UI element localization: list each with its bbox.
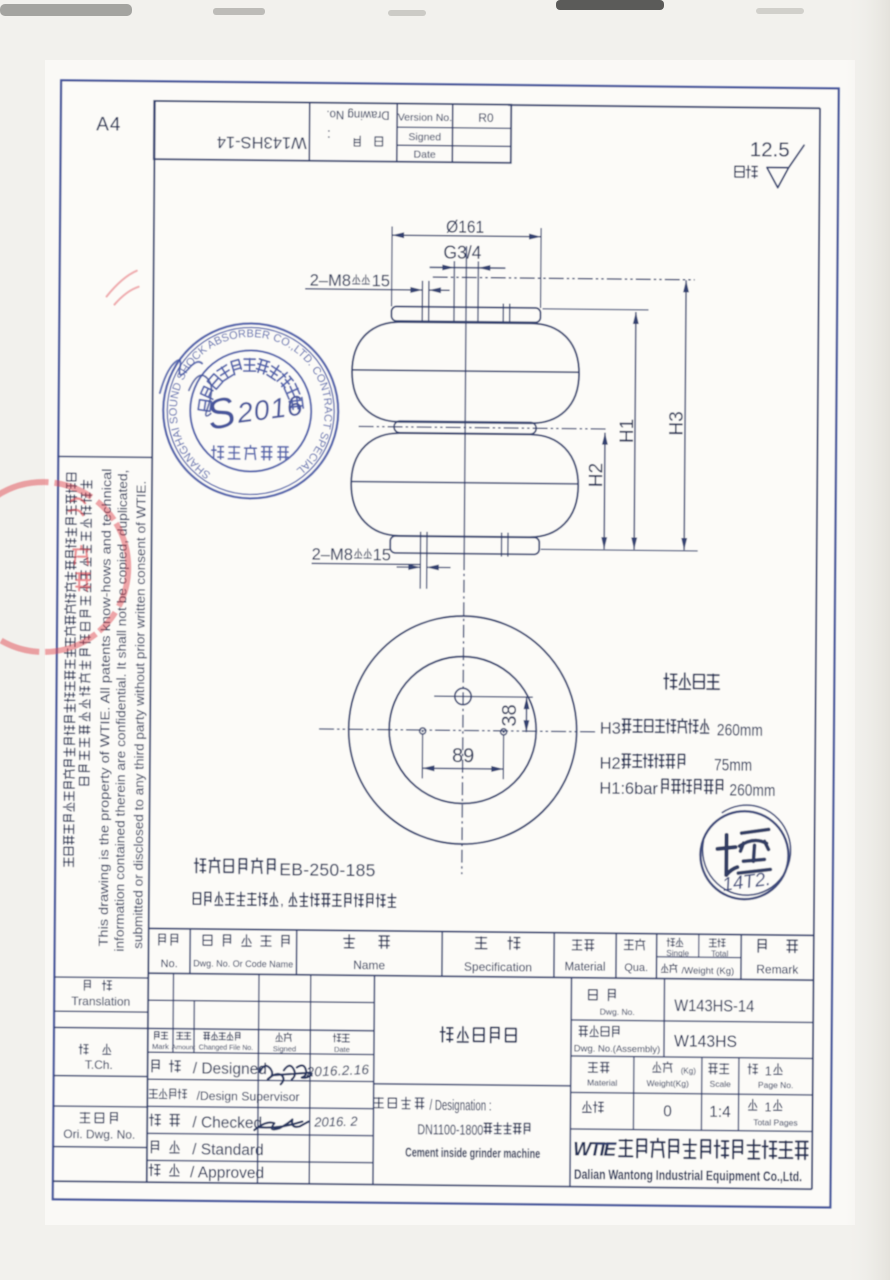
svg-text:/ Approved: / Approved	[190, 1164, 264, 1182]
svg-text:Amount: Amount	[172, 1044, 196, 1051]
svg-text:DN1100-1800: DN1100-1800	[417, 1121, 483, 1139]
svg-text:Specification: Specification	[464, 960, 532, 975]
svg-text:Signed: Signed	[273, 1044, 296, 1053]
svg-text:Page No.: Page No.	[758, 1080, 794, 1090]
svg-text:2016. 2: 2016. 2	[313, 1114, 359, 1130]
svg-text:Signed: Signed	[408, 131, 441, 143]
svg-text:89: 89	[452, 745, 474, 767]
svg-text:Total: Total	[711, 949, 729, 958]
svg-text:2–M8: 2–M8	[310, 272, 351, 290]
svg-text:1: 1	[764, 1100, 771, 1114]
svg-text:Date: Date	[413, 149, 435, 161]
svg-text:H1:: H1:	[599, 780, 625, 798]
svg-text:Dwg. No. Or Code Name: Dwg. No. Or Code Name	[193, 958, 293, 969]
svg-text:Cement inside grinder machine: Cement inside grinder machine	[405, 1145, 540, 1161]
svg-text:/ Designed: / Designed	[193, 1060, 267, 1078]
svg-text:260mm: 260mm	[729, 781, 775, 800]
svg-text:Translation: Translation	[71, 994, 130, 1009]
svg-text:,: ,	[280, 892, 284, 908]
svg-text:2–M8: 2–M8	[312, 546, 353, 564]
svg-text:0: 0	[663, 1103, 672, 1120]
svg-text:15: 15	[373, 546, 391, 564]
svg-text:W143HS-14: W143HS-14	[217, 133, 307, 152]
svg-text:Version No.: Version No.	[398, 111, 452, 124]
svg-text:Changed File No.: Changed File No.	[199, 1044, 254, 1052]
svg-text:/ Checked: / Checked	[192, 1114, 262, 1132]
svg-text:(Kg): (Kg)	[681, 1067, 697, 1076]
svg-text:Scale: Scale	[710, 1079, 732, 1089]
svg-text:A4: A4	[96, 114, 121, 135]
svg-text:38: 38	[499, 704, 521, 726]
svg-text:W143HS-14: W143HS-14	[674, 996, 754, 1016]
svg-text:260mm: 260mm	[717, 720, 763, 739]
svg-text:2016.2.16: 2016.2.16	[305, 1062, 370, 1080]
svg-text:H1: H1	[617, 419, 638, 444]
svg-text:Drawing No.: Drawing No.	[326, 108, 389, 121]
svg-text:Remark: Remark	[756, 962, 799, 976]
svg-text:/ Designation :: / Designation :	[429, 1098, 491, 1115]
svg-text:T.Ch.: T.Ch.	[85, 1058, 113, 1072]
svg-text:1: 1	[765, 1064, 772, 1078]
svg-text:R0: R0	[478, 111, 494, 125]
svg-text:12.5: 12.5	[750, 138, 790, 161]
svg-text:EB-250-185: EB-250-185	[279, 859, 376, 880]
svg-text:Total Pages: Total Pages	[753, 1117, 797, 1127]
svg-text:H2: H2	[586, 463, 607, 488]
svg-text:Ø161: Ø161	[446, 216, 484, 236]
svg-text:H3:: H3:	[600, 720, 626, 738]
svg-text:/Weight (Kg): /Weight (Kg)	[681, 966, 734, 978]
svg-text:/ Standard: / Standard	[192, 1141, 264, 1159]
svg-text:Name: Name	[353, 958, 385, 972]
svg-text:Dwg. No.(Assembly): Dwg. No.(Assembly)	[574, 1043, 661, 1055]
svg-text:W143HS: W143HS	[674, 1031, 737, 1051]
svg-text::: :	[327, 127, 331, 143]
svg-text:Ori. Dwg. No.: Ori. Dwg. No.	[63, 1127, 135, 1142]
svg-text:1:4: 1:4	[709, 1104, 731, 1121]
svg-text:Date: Date	[334, 1045, 350, 1054]
svg-text:Weight(Kg): Weight(Kg)	[646, 1078, 689, 1088]
svg-text:H2:: H2:	[600, 755, 626, 773]
svg-text:No.: No.	[161, 958, 178, 970]
svg-text:Mark: Mark	[152, 1042, 169, 1051]
svg-text:Material: Material	[587, 1078, 617, 1088]
svg-text:Qua.: Qua.	[624, 962, 648, 974]
svg-text:Single: Single	[666, 949, 689, 958]
svg-text:15: 15	[372, 272, 390, 290]
svg-text:75mm: 75mm	[714, 755, 752, 774]
svg-text:G3/4: G3/4	[443, 242, 481, 262]
svg-text:Material: Material	[564, 961, 605, 973]
svg-text:H3: H3	[667, 411, 688, 436]
svg-text:Dalian Wantong Industrial Equi: Dalian Wantong Industrial Equipment Co.,…	[574, 1167, 802, 1184]
svg-text:/Design Supervisor: /Design Supervisor	[197, 1089, 300, 1104]
svg-text:6bar: 6bar	[625, 780, 659, 798]
svg-text:Dwg. No.: Dwg. No.	[600, 1007, 635, 1017]
